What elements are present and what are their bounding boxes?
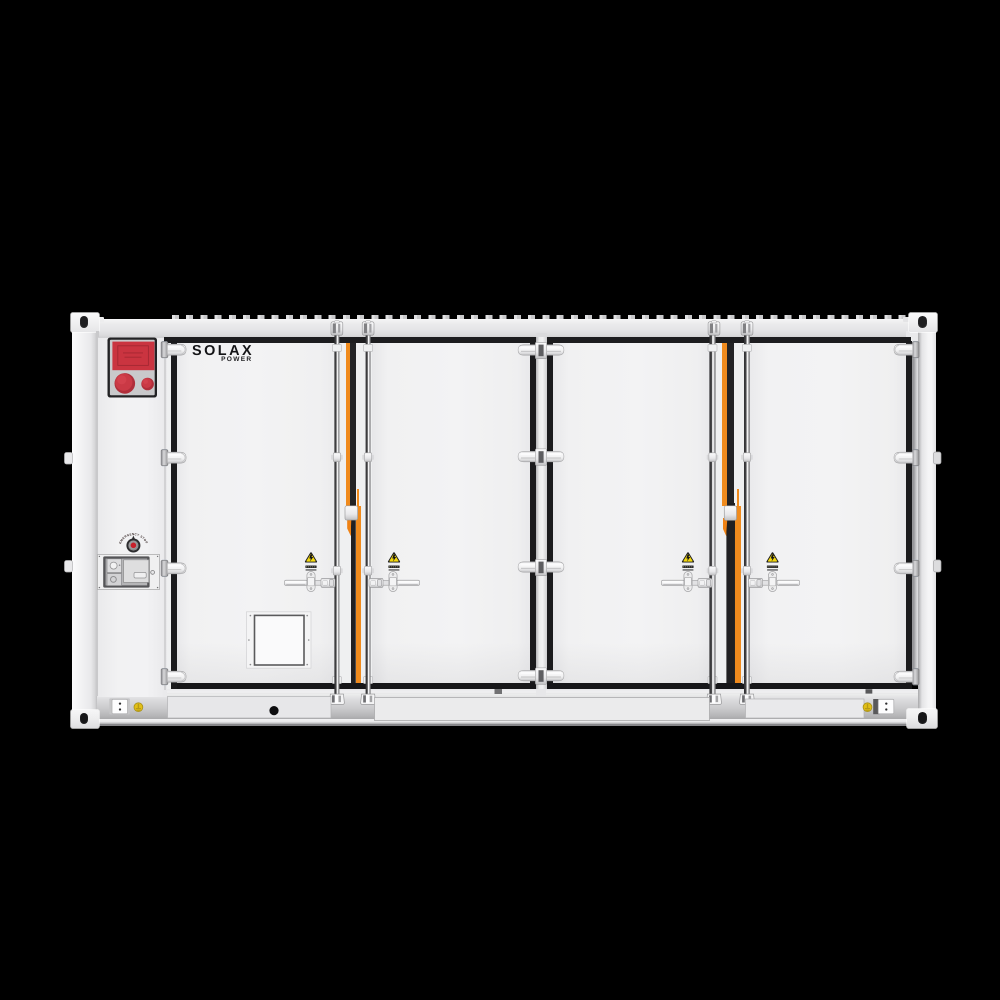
svg-text:POWER: POWER <box>221 356 252 363</box>
